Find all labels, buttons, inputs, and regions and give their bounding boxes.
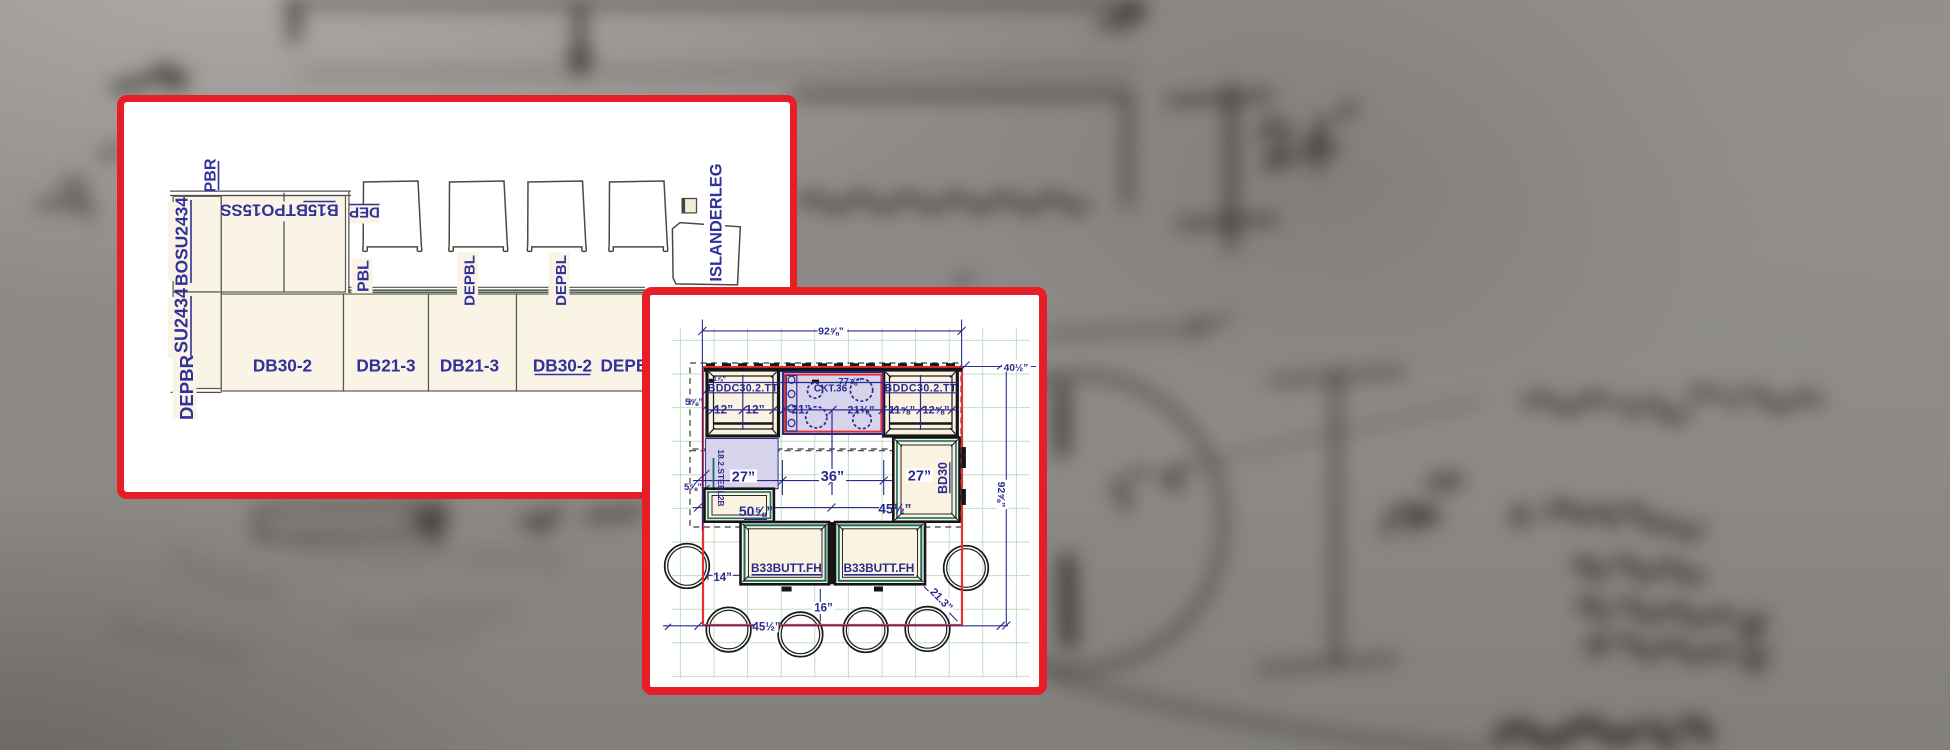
svg-text:16”: 16” (814, 603, 833, 615)
svg-text:BDDC30.2.TT: BDDC30.2.TT (708, 382, 779, 394)
svg-text:DEP: DEP (349, 204, 380, 221)
svg-text:PBL: PBL (356, 260, 373, 292)
svg-text:11⅝”: 11⅝” (889, 405, 915, 417)
svg-text:45½”: 45½” (752, 621, 780, 633)
svg-text:12”: 12” (714, 403, 733, 417)
svg-text:12”: 12” (745, 403, 764, 417)
svg-text:DB21-3: DB21-3 (356, 356, 415, 376)
svg-text:21”: 21” (791, 403, 810, 417)
svg-text:DB21-3: DB21-3 (440, 356, 499, 376)
svg-text:DB30-2: DB30-2 (253, 356, 312, 376)
svg-text:50⅝”: 50⅝” (739, 503, 773, 519)
svg-text:DEPBR: DEPBR (176, 354, 197, 420)
svg-text:18.2.STEEL2B: 18.2.STEEL2B (716, 449, 726, 506)
svg-text:27”: 27” (908, 469, 931, 485)
svg-text:BDDC30.2.TT: BDDC30.2.TT (885, 382, 958, 394)
svg-text:BD30: BD30 (936, 462, 950, 494)
svg-text:DEPBL: DEPBL (462, 255, 479, 306)
svg-text:40½”: 40½” (1004, 363, 1028, 374)
svg-text:77⅞”: 77⅞” (838, 377, 861, 388)
svg-text:27”: 27” (732, 470, 755, 486)
svg-text:PBR: PBR (202, 158, 220, 192)
svg-text:SU2434: SU2434 (172, 288, 192, 353)
svg-text:45½”: 45½” (878, 502, 911, 517)
svg-text:DEPBL: DEPBL (553, 255, 570, 306)
svg-text:DB30-2: DB30-2 (533, 356, 592, 376)
svg-text:5⅝”: 5⅝” (685, 397, 703, 408)
svg-text:21⅜”: 21⅜” (848, 405, 875, 417)
svg-text:BOSU2434: BOSU2434 (172, 197, 192, 286)
svg-text:14”: 14” (713, 572, 732, 584)
svg-text:B15BTPO15SS: B15BTPO15SS (220, 201, 338, 220)
svg-text:36”: 36” (821, 469, 844, 485)
svg-text:B33BUTT.FH: B33BUTT.FH (844, 561, 915, 575)
svg-text:92⅝”: 92⅝” (818, 325, 844, 337)
svg-text:B33BUTT.FH: B33BUTT.FH (751, 561, 822, 575)
svg-text:1⅞”: 1⅞” (713, 376, 726, 383)
svg-text:ISLANDERLEG: ISLANDERLEG (708, 163, 726, 281)
svg-text:5⅝”: 5⅝” (684, 482, 702, 493)
svg-text:92⅝”: 92⅝” (995, 482, 1007, 508)
svg-text:12⅝”: 12⅝” (923, 405, 950, 417)
